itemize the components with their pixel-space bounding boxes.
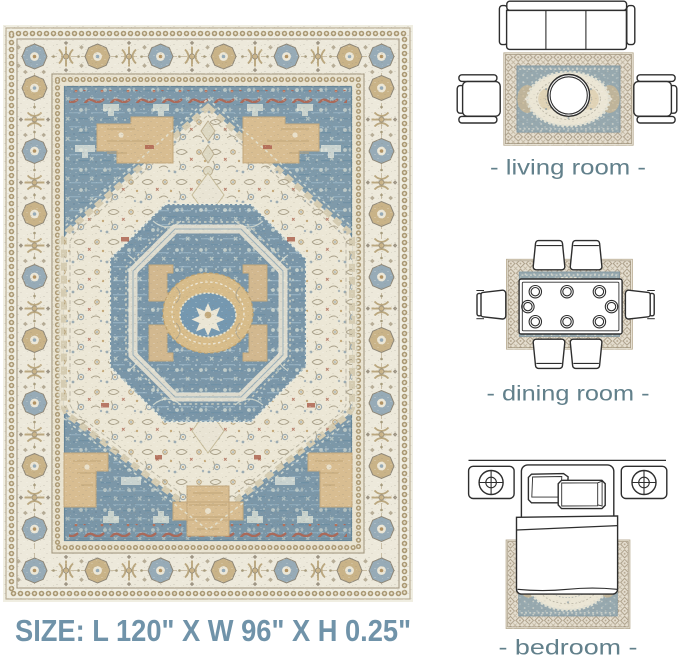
- svg-text:SIZE: L 120" X W 96" X H 0.25": SIZE: L 120" X W 96" X H 0.25": [15, 613, 411, 648]
- svg-text:- living room -: - living room -: [490, 157, 646, 180]
- svg-text:- bedroom -: - bedroom -: [499, 637, 638, 657]
- svg-text:- dining room -: - dining room -: [487, 383, 650, 406]
